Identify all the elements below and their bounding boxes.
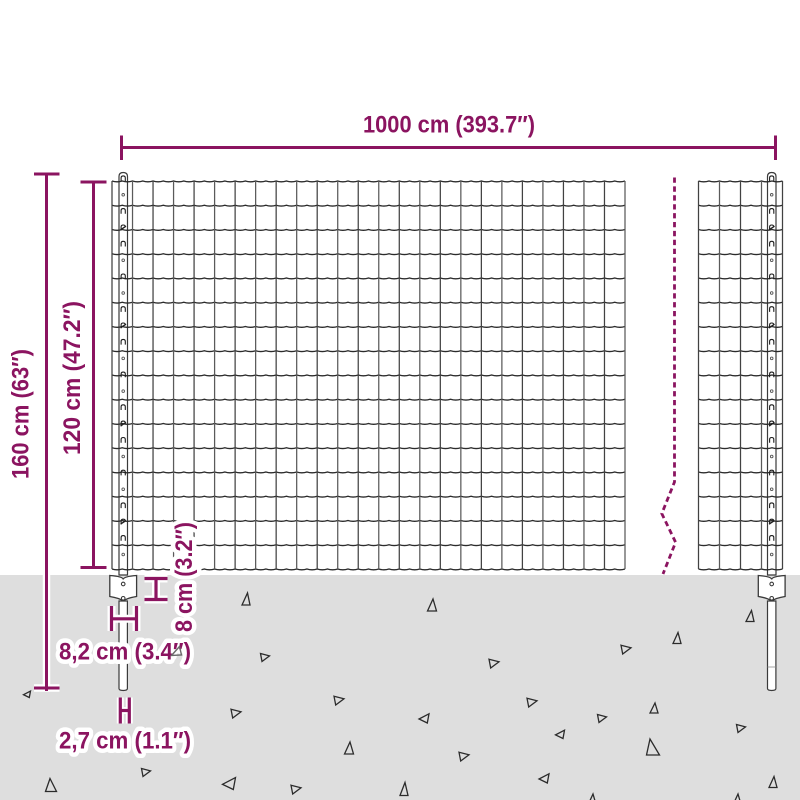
svg-text:160 cm (63″): 160 cm (63″): [8, 349, 35, 479]
svg-text:8 cm (3.2″): 8 cm (3.2″): [171, 522, 198, 632]
svg-text:120 cm (47.2″): 120 cm (47.2″): [59, 301, 86, 455]
svg-text:8,2 cm (3.4″): 8,2 cm (3.4″): [59, 639, 191, 666]
svg-text:2,7 cm (1.1″): 2,7 cm (1.1″): [59, 728, 191, 755]
svg-text:1000 cm (393.7″): 1000 cm (393.7″): [363, 112, 535, 139]
